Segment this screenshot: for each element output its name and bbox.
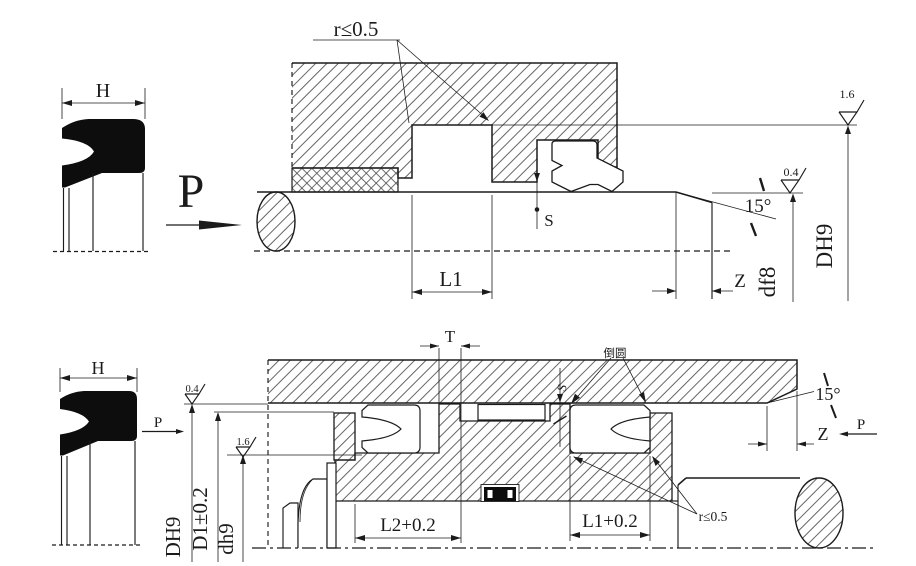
piston-seal-right	[570, 405, 650, 453]
label-groove-length-l1-bottom: L1+0.2	[582, 511, 638, 532]
backup-ring-cross-section	[292, 168, 398, 192]
label-groove-length-l1: L1	[439, 267, 462, 291]
seal-installation-drawing: H P r≤0.5	[0, 0, 916, 566]
static-rod-seal	[481, 485, 519, 502]
rod-end-section-bottom	[795, 478, 843, 548]
chamfer-angle-callout-top: 15°	[676, 178, 776, 236]
piston-seal-left	[362, 405, 420, 453]
bottom-view-piston-seal-installation: DH9 D1±0.2 dh9 0.4 1.6 T	[161, 327, 877, 562]
label-pressure-bottom-left: P	[154, 415, 162, 431]
label-clearance-s-top: S	[544, 211, 553, 230]
label-bore-diameter-dh9-bottom: DH9	[161, 517, 185, 558]
guide-wear-ring	[478, 405, 545, 421]
roughness-symbol-rod-bottom: 1.6	[236, 437, 256, 457]
label-seal-width-bottom: H	[92, 358, 105, 378]
label-pressure-top: P	[178, 165, 205, 218]
label-seal-width-top: H	[96, 80, 110, 102]
label-radius-note-bottom: r≤0.5	[699, 509, 728, 524]
label-roughness-0-4-top: 0.4	[784, 165, 799, 179]
label-pressure-bottom-right: P	[857, 417, 865, 433]
label-chamfer-length-z-top: Z	[734, 271, 746, 292]
top-view-rod-seal-installation: r≤0.5 L1 S 15°	[254, 17, 864, 302]
drawing-canvas: H P r≤0.5	[0, 0, 916, 566]
rod-diameter-dimension-bottom: dh9	[214, 455, 246, 562]
roughness-symbol-rod-top: 0.4	[781, 165, 806, 193]
label-groove-diameter-d1: D1±0.2	[188, 487, 212, 550]
label-chamfer-angle-bottom: 15°	[815, 384, 840, 404]
retaining-washer	[334, 413, 355, 460]
clearance-dimension-top: S	[534, 158, 554, 230]
label-roughness-1-6-top: 1.6	[840, 87, 855, 101]
left-groove-length-dimension: L2+0.2	[355, 504, 461, 543]
label-chamfer-length-z-bottom: Z	[818, 424, 829, 444]
label-rod-diameter-df8: df8	[755, 267, 780, 298]
label-roughness-1-6-bottom: 1.6	[236, 437, 249, 448]
top-pressure-indicator: P	[166, 165, 242, 230]
u-cup-seal-cross-section	[62, 119, 145, 188]
label-radius-note-top: r≤0.5	[334, 17, 379, 41]
rod-end-section	[257, 192, 295, 251]
u-cup-seal-cross-section-bottom	[60, 391, 137, 456]
label-land-width-t: T	[445, 327, 456, 346]
bore-diameter-dimension-top: DH9	[812, 126, 851, 302]
label-roughness-0-4-bottom: 0.4	[185, 384, 199, 395]
label-groove-length-l2: L2+0.2	[380, 515, 436, 536]
top-seal-profile-figure: H	[53, 80, 150, 252]
label-rod-diameter-dh9-small: dh9	[214, 523, 238, 555]
groove-length-dimension-top: L1	[412, 195, 492, 299]
roughness-symbol-bore-bottom: 0.4	[185, 384, 205, 404]
cylinder-wall-hatched	[268, 360, 797, 403]
chamfer-length-dimension-top: Z	[652, 192, 746, 299]
bottom-pressure-indicator-left: P	[142, 415, 184, 434]
roughness-symbol-bore-top: 1.6	[839, 87, 864, 125]
bottom-pressure-indicator-right: P	[839, 417, 877, 437]
piston-retaining-nut	[283, 463, 336, 548]
nut-washer	[327, 463, 336, 548]
label-bore-diameter-dh9-top: DH9	[812, 224, 837, 269]
label-chamfer-angle-top: 15°	[745, 196, 772, 217]
